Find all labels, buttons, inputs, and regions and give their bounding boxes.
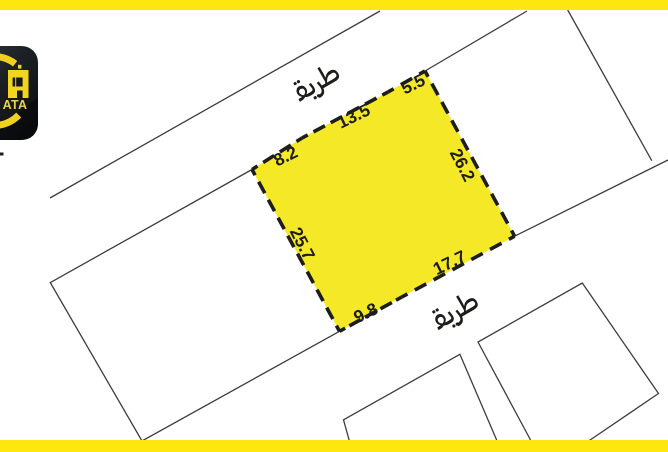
svg-text:ATA: ATA: [3, 98, 28, 112]
